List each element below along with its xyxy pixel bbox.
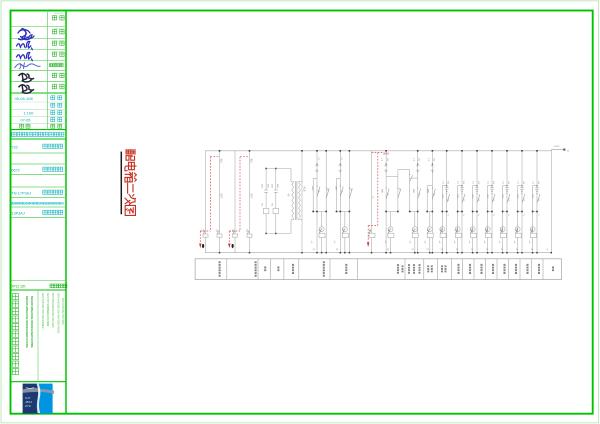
svg-text:0672: 0672	[11, 168, 19, 172]
svg-text:XP12 12h: XP12 12h	[11, 284, 25, 288]
svg-text:ACB: ACB	[302, 187, 305, 192]
svg-text:1KM: 1KM	[486, 194, 488, 199]
svg-text:1:100: 1:100	[24, 111, 35, 116]
svg-text:1KM: 1KM	[441, 194, 443, 199]
svg-text:2007.06.05: 2007.06.05	[54, 84, 63, 86]
svg-text:~220V: ~220V	[553, 146, 560, 148]
svg-text:ZYZ: ZYZ	[25, 404, 31, 408]
svg-text:732: 732	[11, 145, 17, 149]
svg-text:BENHMSRBEHSNHABRME99SH: BENHMSRBEHSNHABRME99SH	[41, 293, 44, 330]
svg-text:BENHMSRBEHSNHABRMESHNEBS1024BE: BENHMSRBEHSNHABRMESHNEBS1024BE	[25, 296, 28, 348]
svg-text:1KM: 1KM	[427, 189, 429, 194]
svg-text:13P3AJ: 13P3AJ	[11, 212, 24, 216]
svg-text:1KM: 1KM	[531, 194, 533, 199]
svg-text:BV3: BV3	[249, 194, 251, 199]
svg-text:07-05: 07-05	[21, 118, 31, 123]
svg-text:1KM: 1KM	[471, 194, 473, 199]
svg-text:1KM: 1KM	[516, 194, 518, 199]
svg-text:05-06-108: 05-06-108	[15, 96, 34, 101]
svg-text:1KM: 1KM	[311, 186, 313, 191]
svg-text:2007.06.05: 2007.06.05	[54, 63, 63, 65]
svg-text:BENHMSRBEHSNHABR: BENHMSRBEHSNHABR	[61, 298, 64, 325]
svg-text:BENHMSRBEHSNHABRMESHNEBSBENHMS: BENHMSRBEHSNHABRMESHNEBSBENHMSRBEH	[11, 201, 64, 205]
svg-text:2007.06.05: 2007.06.05	[54, 29, 63, 31]
svg-text:BENHMSRBEHSNHABRMESHNEBS0388BE: BENHMSRBEHSNHABRMESHNEBS0388BE	[30, 296, 33, 348]
svg-text:2007.06.05: 2007.06.05	[54, 41, 63, 43]
svg-text:1KM: 1KM	[412, 189, 414, 194]
svg-text:2007.06.05: 2007.06.05	[54, 52, 63, 54]
svg-text:1KM: 1KM	[501, 194, 503, 199]
svg-text:1KM: 1KM	[456, 194, 458, 199]
svg-text:2007.06.05: 2007.06.05	[54, 13, 63, 15]
svg-text:2007.06.05: 2007.06.05	[54, 73, 63, 75]
svg-text:1KM: 1KM	[380, 189, 382, 194]
svg-text:BV3: BV3	[219, 194, 221, 199]
svg-text:BENH541002MSRBEHSNHABR: BENH541002MSRBEHSNHABR	[51, 293, 54, 328]
svg-text:1KM: 1KM	[335, 186, 337, 191]
svg-text:WL1: WL1	[219, 159, 221, 164]
svg-text:WL1: WL1	[249, 159, 251, 164]
svg-text:BENHMSRBEHSNHABRMESHNEBS: BENHMSRBEHSNHABRMESHNEBS	[57, 293, 60, 334]
svg-text:BENH077125886664MSRB882: BENH077125886664MSRB882	[46, 293, 49, 327]
svg-text:TN-17P3AJ: TN-17P3AJ	[11, 191, 31, 195]
